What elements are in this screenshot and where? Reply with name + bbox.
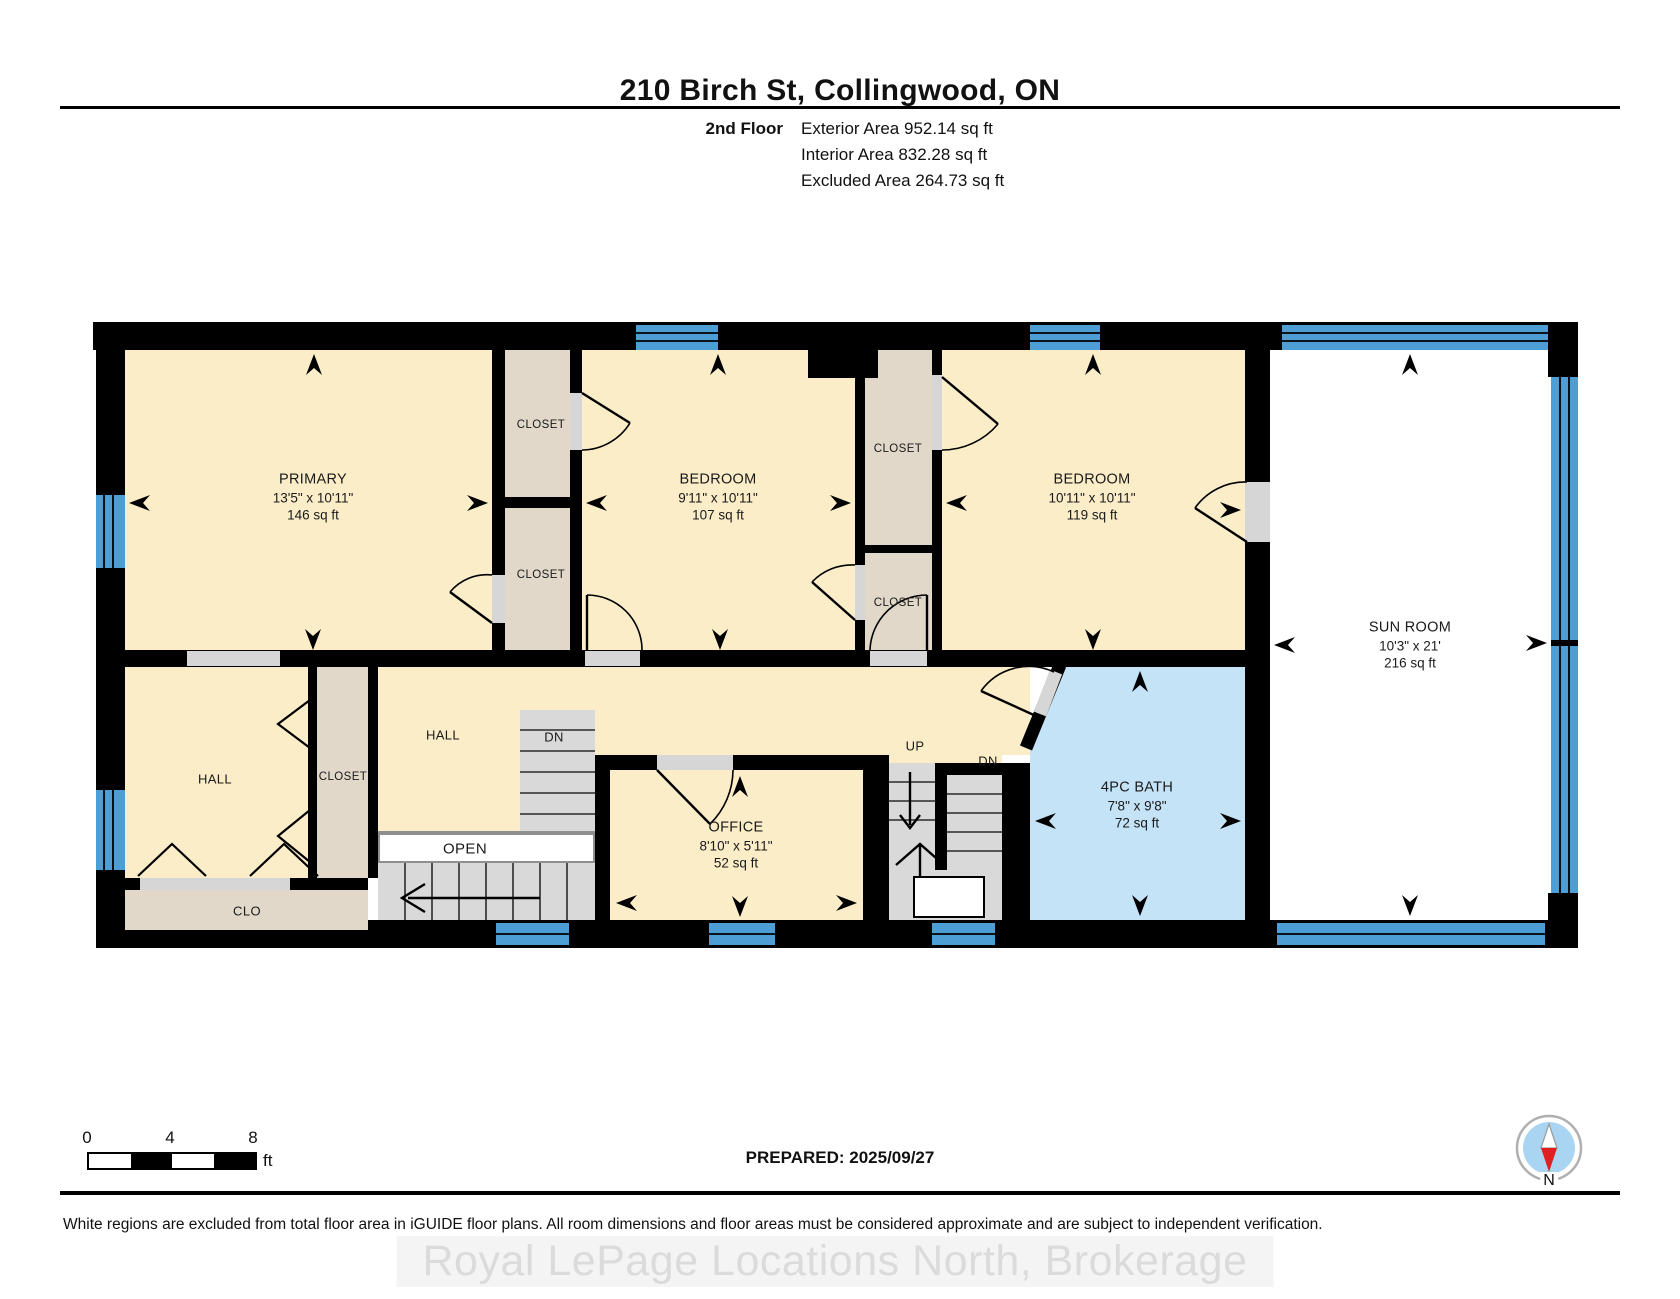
title-divider	[60, 106, 1620, 109]
scale-mid: 4	[165, 1128, 174, 1148]
floor-plan-drawing	[90, 320, 1580, 950]
room-label-bath: 4PC BATH 7'8" x 9'8" 72 sq ft	[1101, 778, 1173, 831]
disclaimer-text: White regions are excluded from total fl…	[63, 1216, 1323, 1234]
stat-value: 264.73 sq ft	[915, 171, 1004, 190]
interior-area-stat: Interior Area 832.28 sq ft	[801, 145, 987, 165]
stat-label: Interior Area	[801, 145, 894, 164]
scale-bar	[87, 1152, 257, 1170]
stat-value: 832.28 sq ft	[898, 145, 987, 164]
dn-label: DN	[544, 730, 564, 745]
room-fills	[125, 350, 1551, 920]
page-title: 210 Birch St, Collingwood, ON	[620, 74, 1060, 108]
open-label: OPEN	[443, 841, 487, 858]
excluded-area-stat: Excluded Area 264.73 sq ft	[801, 171, 1004, 191]
scale-end: 8	[248, 1128, 257, 1148]
closet-label: CLOSET	[517, 569, 565, 581]
dn-label: DN	[978, 754, 998, 769]
up-label: UP	[906, 739, 925, 754]
room-label-primary: PRIMARY 13'5" x 10'11" 146 sq ft	[273, 470, 354, 523]
closet-label: CLOSET	[874, 597, 922, 609]
closet-label: CLOSET	[517, 419, 565, 431]
closet-label: CLOSET	[319, 771, 367, 783]
room-label-office: OFFICE 8'10" x 5'11" 52 sq ft	[699, 818, 772, 871]
floor-label: 2nd Floor	[706, 119, 783, 139]
stat-label: Excluded Area	[801, 171, 911, 190]
scale-start: 0	[82, 1128, 91, 1148]
prepared-date: PREPARED: 2025/09/27	[746, 1148, 935, 1168]
hall-label: HALL	[198, 772, 232, 787]
stat-value: 952.14 sq ft	[904, 119, 993, 138]
hall-label: HALL	[426, 728, 460, 743]
brokerage-watermark: Royal LePage Locations North, Brokerage	[396, 1236, 1273, 1287]
clo-label: CLO	[233, 904, 261, 919]
room-label-bedroom2: BEDROOM 10'11" x 10'11" 119 sq ft	[1048, 470, 1135, 523]
stat-label: Exterior Area	[801, 119, 899, 138]
room-label-sunroom: SUN ROOM 10'3" x 21' 216 sq ft	[1369, 618, 1451, 671]
compass-north-label: N	[1540, 1172, 1558, 1190]
closet-label: CLOSET	[874, 443, 922, 455]
room-label-bedroom1: BEDROOM 9'11" x 10'11" 107 sq ft	[678, 470, 758, 523]
sunroom-side-window	[1551, 377, 1578, 893]
floor-plan: PRIMARY 13'5" x 10'11" 146 sq ft BEDROOM…	[90, 320, 1580, 950]
exterior-area-stat: Exterior Area 952.14 sq ft	[801, 119, 993, 139]
footer-divider	[60, 1191, 1620, 1195]
scale-unit: ft	[263, 1151, 272, 1171]
